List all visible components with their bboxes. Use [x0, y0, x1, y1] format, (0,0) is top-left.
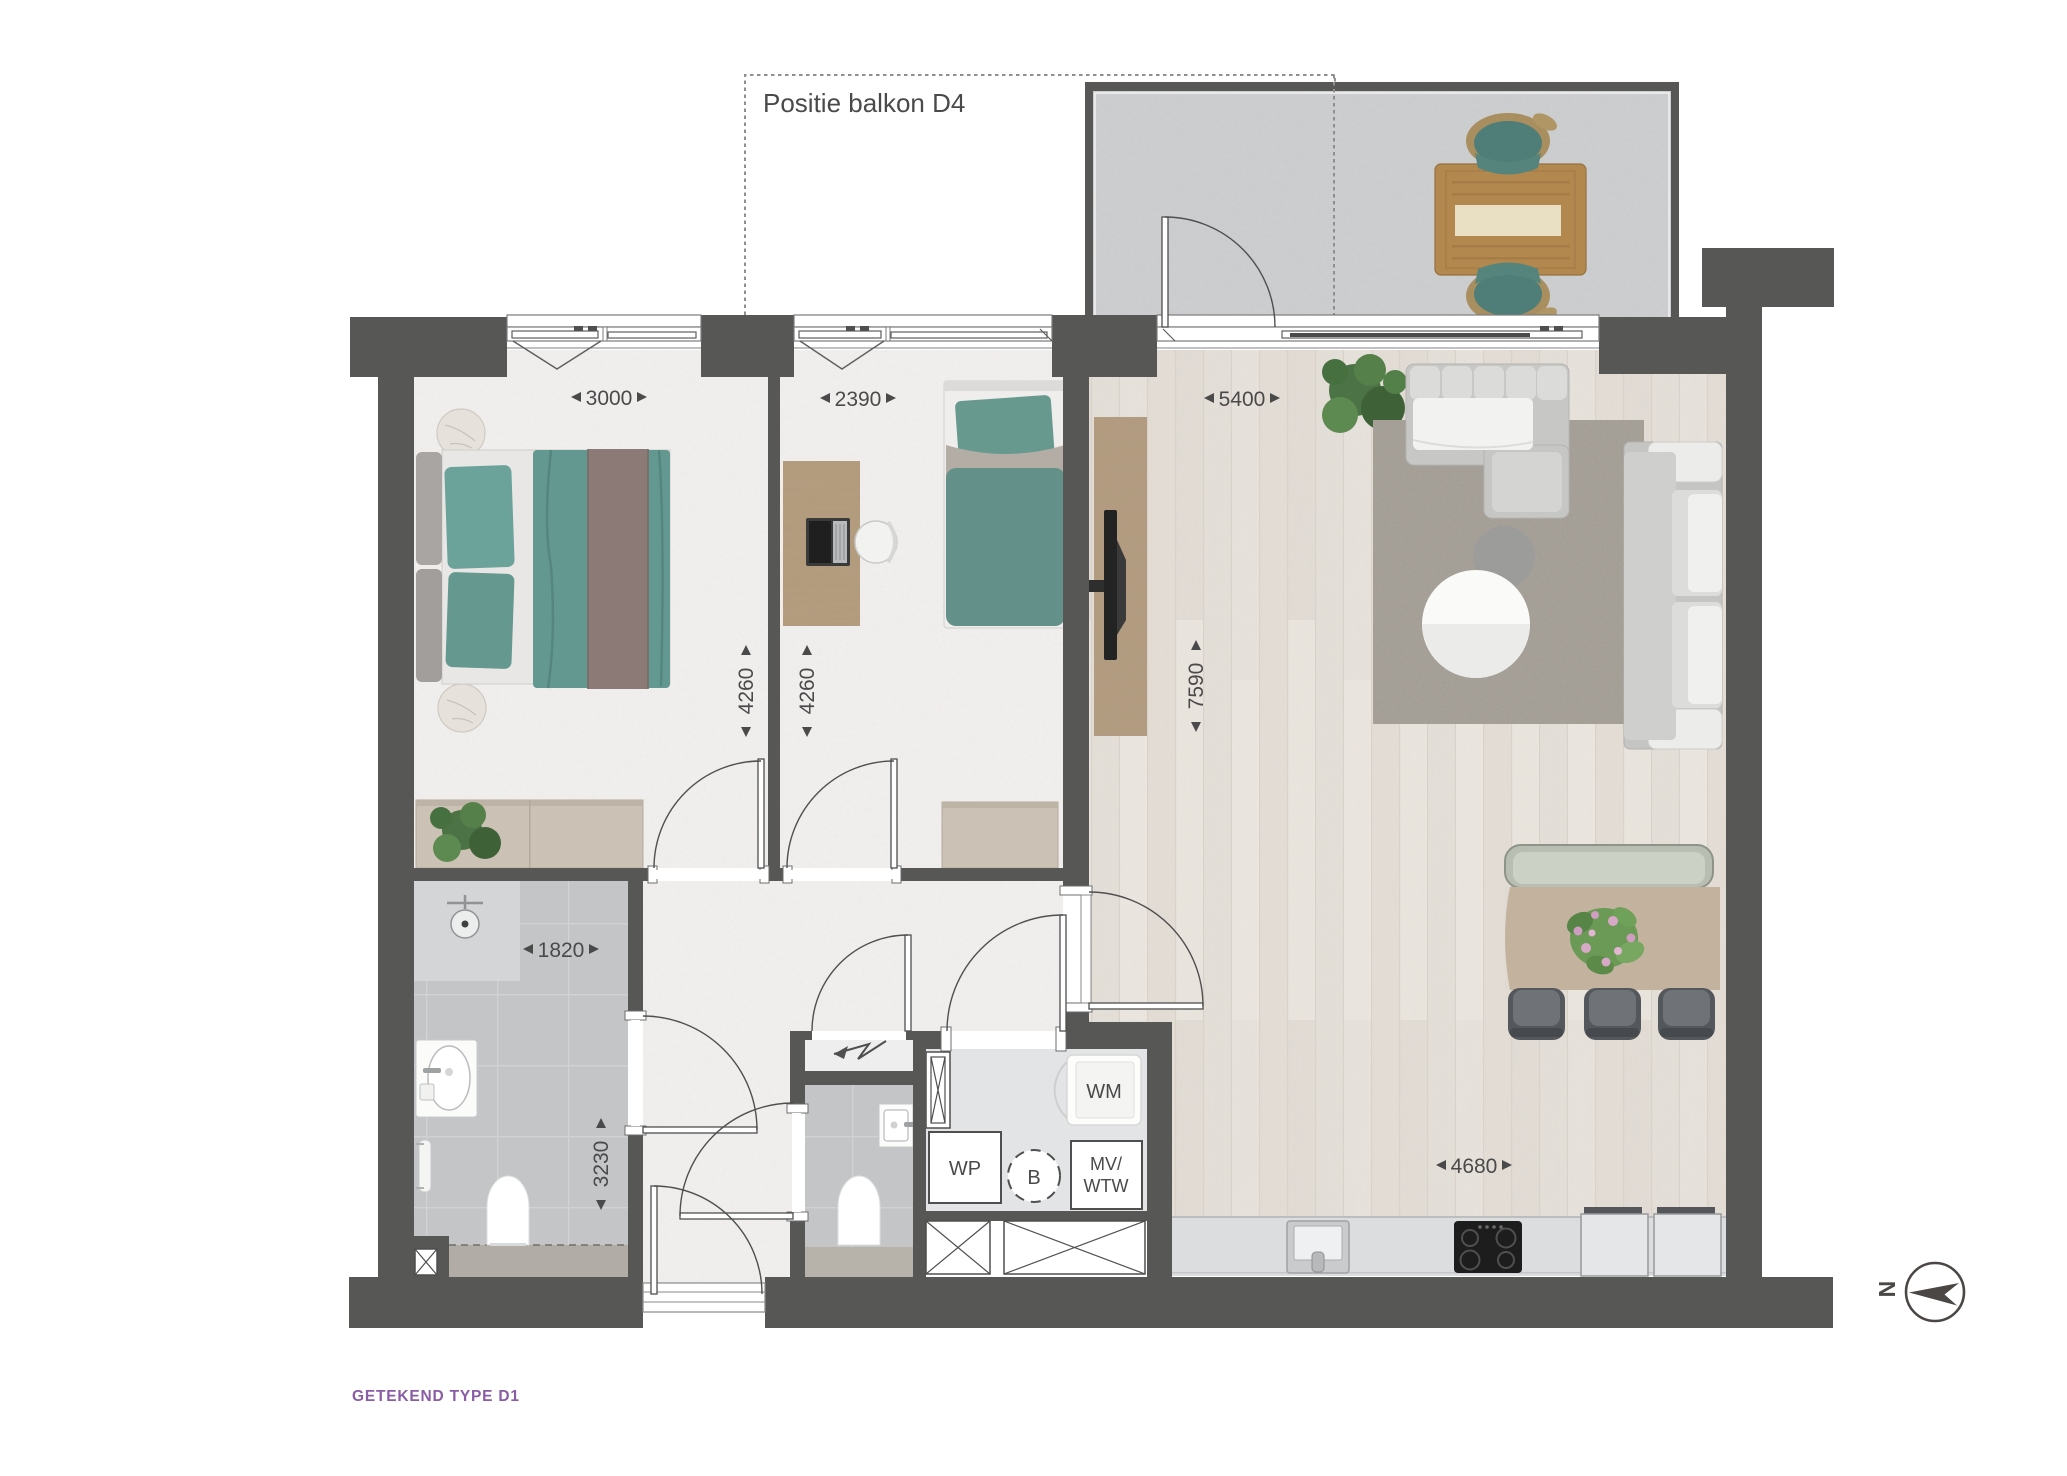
svg-text:7590: 7590 — [1185, 663, 1208, 710]
svg-text:Positie balkon D4: Positie balkon D4 — [763, 88, 965, 118]
svg-text:4680: 4680 — [1451, 1155, 1498, 1178]
svg-text:5400: 5400 — [1219, 388, 1266, 411]
svg-text:WTW: WTW — [1084, 1176, 1129, 1196]
svg-text:3230: 3230 — [590, 1141, 613, 1188]
svg-text:3000: 3000 — [586, 387, 633, 410]
svg-text:2390: 2390 — [835, 388, 882, 411]
svg-text:B: B — [1027, 1167, 1040, 1189]
svg-text:WM: WM — [1086, 1081, 1122, 1103]
svg-text:4260: 4260 — [735, 668, 758, 715]
svg-text:4260: 4260 — [796, 668, 819, 715]
svg-text:GETEKEND TYPE D1: GETEKEND TYPE D1 — [352, 1388, 520, 1405]
svg-text:1820: 1820 — [538, 939, 585, 962]
svg-text:N: N — [1874, 1281, 1900, 1298]
svg-text:WP: WP — [949, 1158, 981, 1180]
svg-text:MV/: MV/ — [1090, 1154, 1122, 1174]
